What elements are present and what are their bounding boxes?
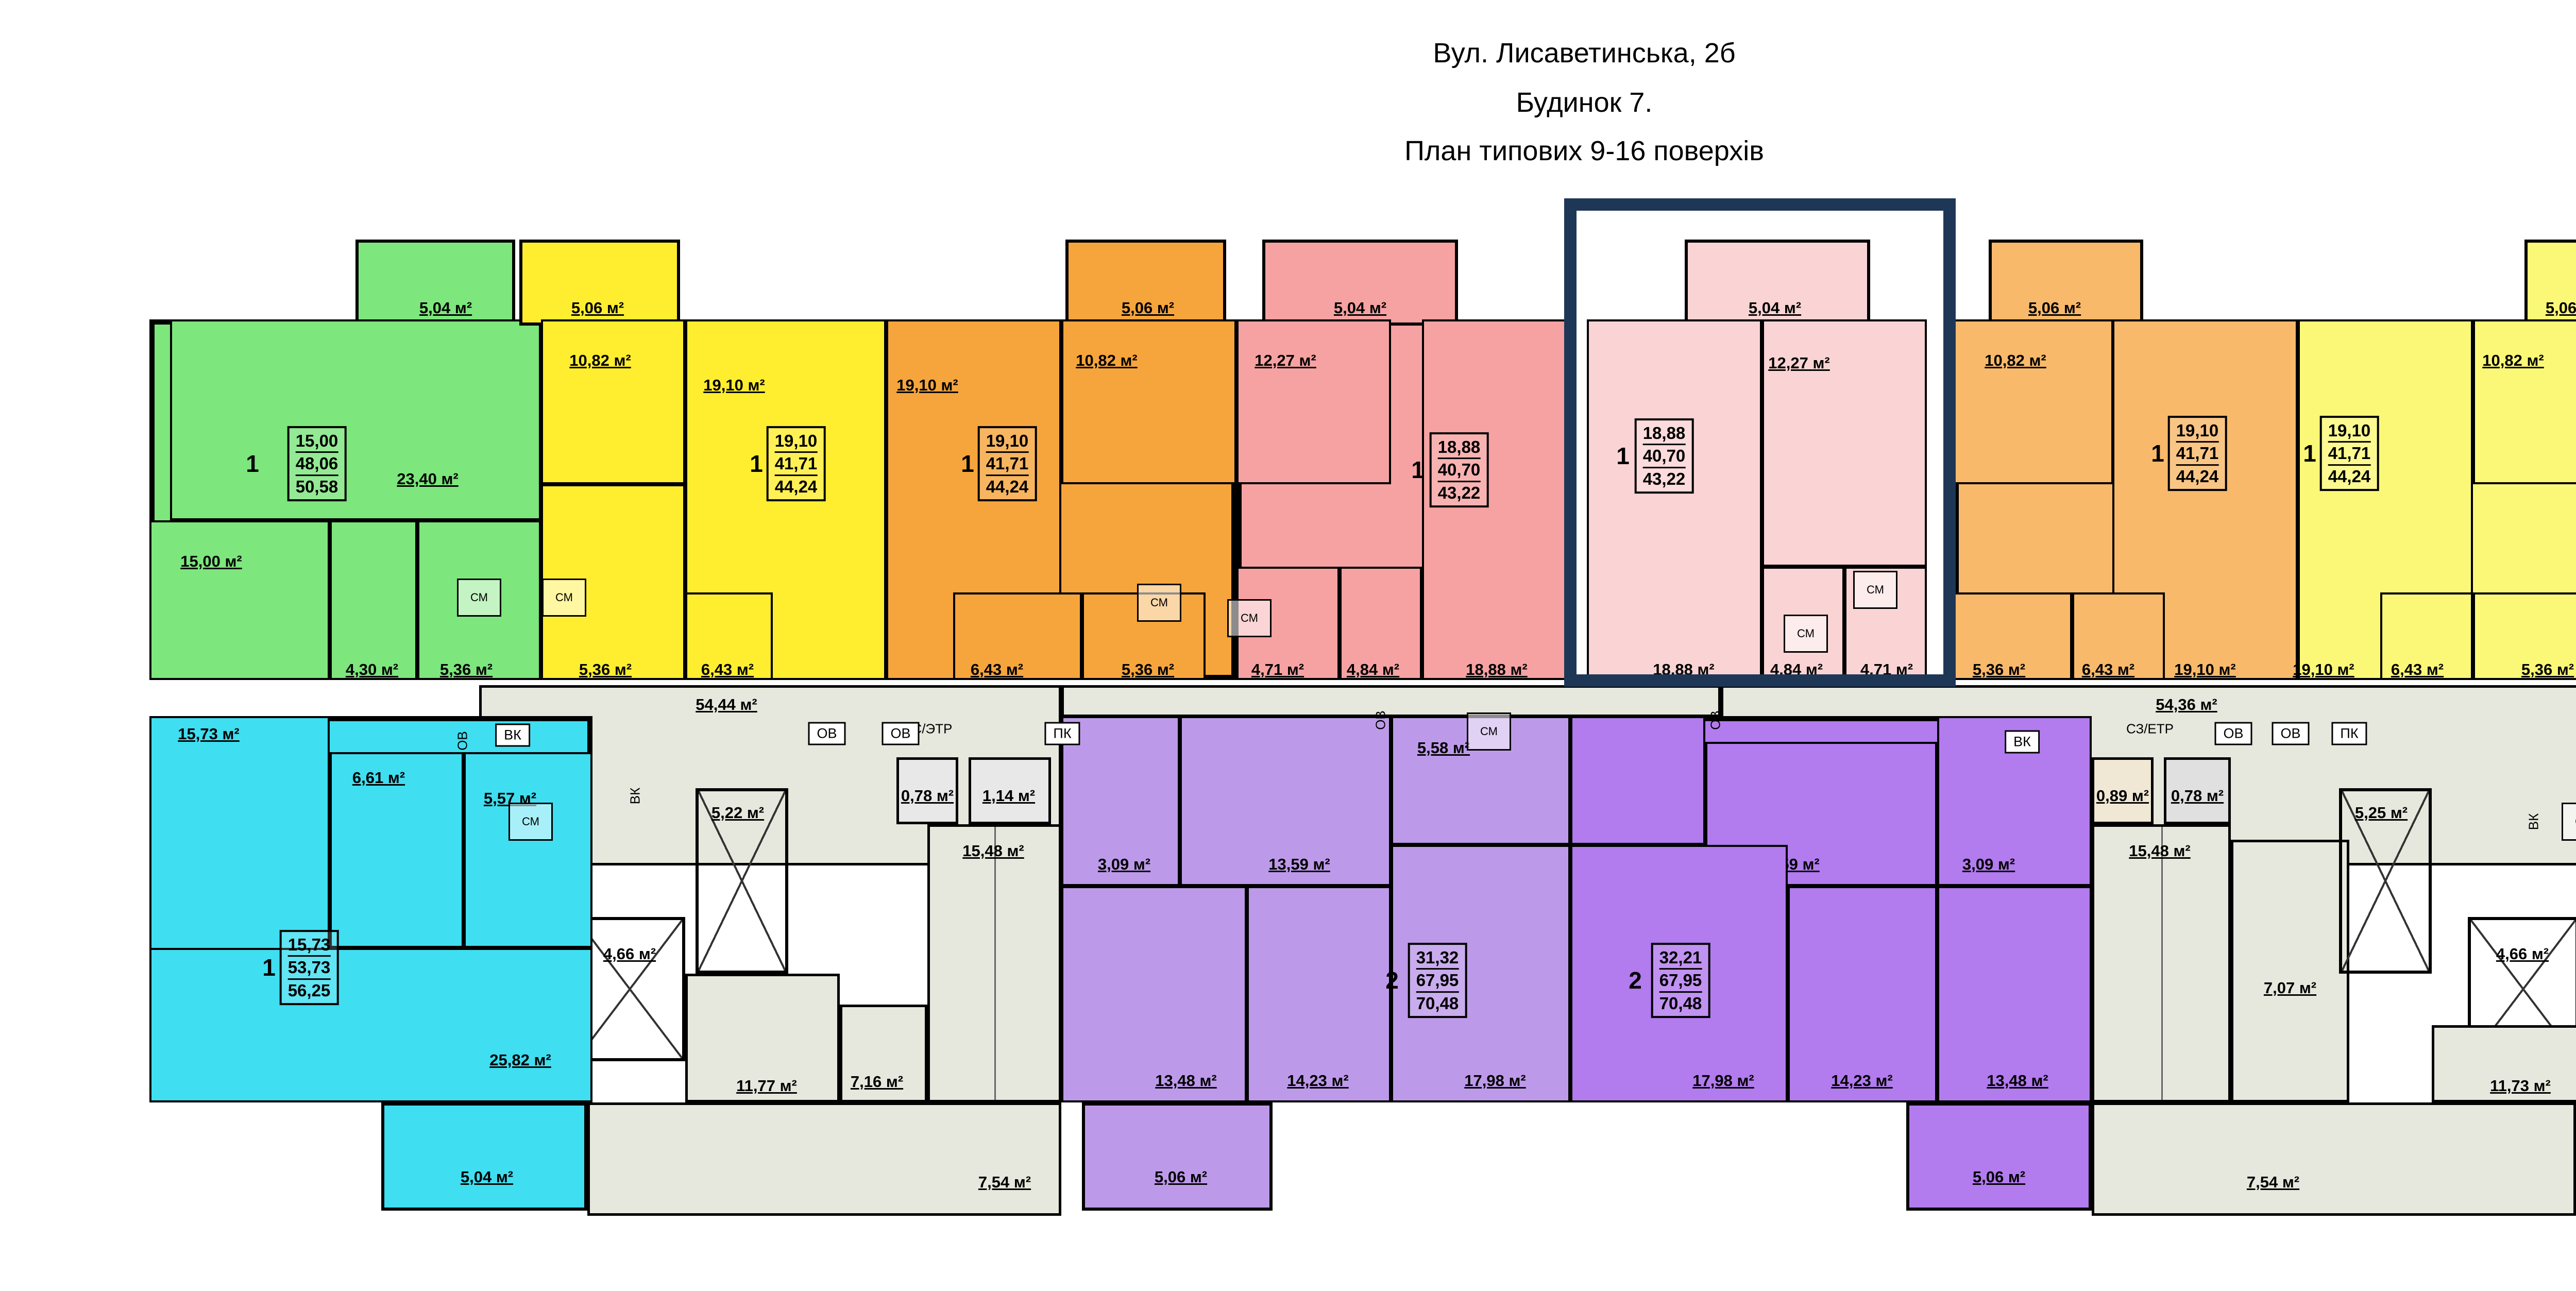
- room-area-label: 10,82 м²: [2482, 351, 2544, 370]
- corridor-area-label: 11,73 м²: [2490, 1077, 2551, 1095]
- elevator-area-label: 5,25 м²: [2355, 804, 2408, 822]
- room-area-label: 18,88 м²: [1466, 660, 1527, 679]
- corridor-area-label: 7,16 м²: [851, 1073, 903, 1091]
- corridor-area-label: 7,54 м²: [978, 1173, 1031, 1192]
- apt-purple-right-room: [1937, 886, 2092, 1102]
- stat-total-area: 44,24: [2176, 466, 2219, 487]
- apt-purple-left-room: [1247, 886, 1391, 1102]
- corridor: [2092, 1102, 2576, 1216]
- room-area-label: 5,58 м²: [1417, 739, 1470, 757]
- stat-living-area: 19,10: [986, 430, 1029, 453]
- room-area-label: 5,36 м²: [2521, 660, 2574, 679]
- room-area-label: 13,48 м²: [1155, 1072, 1216, 1090]
- room-area-label: 3,09 м²: [1962, 855, 2015, 874]
- stat-living-area: 19,10: [775, 430, 818, 453]
- corridor: [2231, 840, 2349, 1102]
- room-area-label: 14,23 м²: [1287, 1072, 1348, 1090]
- room-area-label: 5,36 м²: [579, 660, 632, 679]
- apt-purple-left-rooms-count: 2: [1385, 966, 1399, 994]
- balcony-area-label: 5,06 м²: [2546, 299, 2576, 317]
- title-building: Будинок 7.: [1262, 87, 1906, 118]
- shaft-label-ов: ОВ: [882, 722, 919, 745]
- stairwell: [2092, 824, 2231, 1102]
- shaft-area-label: 0,78 м²: [901, 787, 954, 805]
- stat-apartment-area: 48,06: [296, 453, 338, 475]
- apt-cyan-left-room: [464, 752, 592, 948]
- apt-green-left-room: [330, 520, 417, 680]
- apt-pink-left-stats-box: 18,8840,7043,22: [1430, 432, 1489, 507]
- room-area-label: 17,98 м²: [1464, 1072, 1526, 1090]
- shaft-area-label: 0,78 м²: [2171, 787, 2224, 805]
- shaft-label-вк: ВК: [2005, 731, 2040, 754]
- stat-total-area: 44,24: [2328, 466, 2371, 487]
- apt-green-left-room: [149, 520, 330, 680]
- shaft-area-label: 0,89 м²: [2096, 787, 2149, 805]
- corridor-area-label: 7,54 м²: [2247, 1173, 2299, 1192]
- shaft-label-ов: ОВ: [808, 722, 845, 745]
- stat-living-area: 15,73: [288, 934, 331, 957]
- title-plan-name: План типових 9-16 поверхів: [1262, 135, 1906, 167]
- shaft-label-ов: ОВ: [1708, 710, 1724, 730]
- corridor-area-label: 54,36 м²: [2156, 695, 2217, 714]
- room-area-label: 23,40 м²: [397, 470, 458, 488]
- room-area-label: 13,48 м²: [1987, 1072, 2048, 1090]
- room-area-label: 6,43 м²: [971, 660, 1023, 679]
- stairs-area-label: 15,48 м²: [2129, 842, 2190, 860]
- shaft-label-пк: ПК: [1044, 722, 1080, 745]
- stat-apartment-area: 53,73: [288, 957, 331, 979]
- corridor-area-label: 54,44 м²: [696, 695, 757, 714]
- room-area-label: 10,82 м²: [1985, 351, 2046, 370]
- shaft-label-ов: ОВ: [2214, 722, 2252, 745]
- room-area-label: 15,73 м²: [178, 725, 239, 743]
- room-area-label: 14,23 м²: [1831, 1072, 1892, 1090]
- shaft-label-вк: ВК: [628, 788, 643, 805]
- stairwell: [927, 824, 1061, 1102]
- room-area-label: 19,10 м²: [2293, 660, 2354, 679]
- balcony-area-label: 5,06 м²: [1155, 1168, 1207, 1186]
- shaft-label-ов: ОВ: [455, 731, 471, 751]
- corridor: [587, 1102, 1061, 1216]
- stat-living-area: 15,00: [296, 430, 338, 453]
- room-area-label: 6,43 м²: [2391, 660, 2444, 679]
- apt-purple-right-room: [1788, 886, 1937, 1102]
- room-area-label: 3,09 м²: [1098, 855, 1150, 874]
- apt-orange-left-room: [1061, 319, 1236, 484]
- elevator-area-label: 4,66 м²: [2496, 945, 2549, 963]
- corridor: [1061, 685, 1721, 717]
- apt-yellow-left-stats-box: 19,1041,7144,24: [767, 426, 826, 501]
- balcony-area-label: 5,06 м²: [1122, 299, 1174, 317]
- shaft-label-пк: ПК: [2331, 722, 2367, 745]
- apt-purple-right-balcony: [1906, 1102, 2092, 1211]
- washing-machine-box: СМ: [2562, 803, 2576, 841]
- title-address: Вул. Лисаветинська, 2б: [1262, 37, 1906, 69]
- room-area-label: 19,10 м²: [2174, 660, 2235, 679]
- elevator-area-label: 5,22 м²: [711, 804, 764, 822]
- apt-orange-right-rooms-count: 1: [2151, 439, 2164, 467]
- floor-plan-page: Вул. Лисаветинська, 2б Будинок 7. План т…: [0, 0, 2576, 1291]
- stat-living-area: 19,10: [2176, 420, 2219, 443]
- stat-total-area: 56,25: [288, 980, 331, 1001]
- shaft-label-вк: ВК: [2526, 813, 2542, 830]
- room-area-label: 6,43 м²: [2082, 660, 2134, 679]
- apt-orange-right-room: [1954, 319, 2113, 484]
- apt-pink-left-rooms-count: 1: [1411, 456, 1425, 484]
- stat-total-area: 43,22: [1438, 482, 1481, 503]
- room-area-label: 10,82 м²: [569, 351, 631, 370]
- apt-orange-left-stats-box: 19,1041,7144,24: [978, 426, 1037, 501]
- balcony-area-label: 5,04 м²: [419, 299, 472, 317]
- apt-purple-right-room: [1570, 716, 1705, 845]
- room-area-label: 12,27 м²: [1255, 351, 1316, 370]
- apt-purple-left-room: [1061, 886, 1247, 1102]
- room-area-label: 17,98 м²: [1692, 1072, 1754, 1090]
- room-area-label: 5,36 м²: [440, 660, 493, 679]
- room-area-label: 5,36 м²: [1122, 660, 1174, 679]
- apt-green-left-room: [170, 319, 541, 520]
- stat-living-area: 18,88: [1438, 436, 1481, 459]
- stat-apartment-area: 41,71: [2176, 443, 2219, 465]
- corridor-area-label: 7,07 м²: [2264, 979, 2316, 997]
- stat-apartment-area: 41,71: [2328, 443, 2371, 465]
- stat-apartment-area: 67,95: [1416, 970, 1459, 992]
- balcony-area-label: 5,04 м²: [1334, 299, 1386, 317]
- room-area-label: 19,10 м²: [896, 376, 958, 395]
- room-area-label: 4,30 м²: [346, 660, 398, 679]
- balcony-area-label: 5,06 м²: [571, 299, 624, 317]
- room-area-label: 13,59 м²: [1268, 855, 1330, 874]
- apt-cyan-left-rooms-count: 1: [262, 954, 276, 981]
- apt-yellow-right-stats-box: 19,1041,7144,24: [2320, 416, 2379, 491]
- shaft-label-ов: ОВ: [1373, 710, 1389, 730]
- elevator-area-label: 4,66 м²: [603, 945, 656, 963]
- shaft-label-вк: ВК: [495, 724, 530, 747]
- washing-machine-box: СМ: [542, 579, 586, 617]
- stat-apartment-area: 41,71: [986, 453, 1029, 475]
- stat-apartment-area: 41,71: [775, 453, 818, 475]
- apt-cyan-left-stats-box: 15,7353,7356,25: [280, 930, 339, 1005]
- room-area-label: 15,00 м²: [180, 552, 242, 571]
- room-area-label: 10,82 м²: [1076, 351, 1137, 370]
- stat-apartment-area: 40,70: [1438, 459, 1481, 482]
- shaft-area-label: 1,14 м²: [982, 787, 1035, 805]
- apt-yellow-right-room: [2473, 319, 2576, 484]
- stat-total-area: 50,58: [296, 476, 338, 497]
- shaft-label-сз/етр: СЗ/ЕТР: [2126, 721, 2174, 737]
- room-area-label: 4,84 м²: [1347, 660, 1399, 679]
- apt-yellow-left-rooms-count: 1: [750, 450, 763, 478]
- stairs-area-label: 15,48 м²: [962, 842, 1024, 860]
- room-area-label: 19,10 м²: [703, 376, 765, 395]
- stat-apartment-area: 67,95: [1659, 970, 1702, 992]
- stat-living-area: 19,10: [2328, 420, 2371, 443]
- washing-machine-box: СМ: [1467, 712, 1511, 751]
- apt-orange-right-stats-box: 19,1041,7144,24: [2168, 416, 2227, 491]
- apt-cyan-left-room: [149, 948, 592, 1102]
- washing-machine-box: СМ: [509, 803, 553, 841]
- room-area-label: 6,43 м²: [701, 660, 754, 679]
- washing-machine-box: СМ: [457, 579, 501, 617]
- apt-purple-left-stats-box: 31,3267,9570,48: [1408, 943, 1467, 1018]
- corridor-area-label: 11,77 м²: [736, 1077, 797, 1095]
- apt-cyan-left-balcony: [381, 1102, 587, 1211]
- stat-living-area: 31,32: [1416, 947, 1459, 970]
- stat-total-area: 70,48: [1659, 993, 1702, 1014]
- stat-total-area: 44,24: [775, 476, 818, 497]
- room-area-label: 5,36 м²: [1973, 660, 2025, 679]
- selected-apartment-highlight: [1564, 198, 1956, 687]
- balcony-area-label: 5,06 м²: [2028, 299, 2081, 317]
- washing-machine-box: СМ: [1137, 584, 1181, 622]
- stat-living-area: 32,21: [1659, 947, 1702, 970]
- balcony-area-label: 5,06 м²: [1973, 1168, 2025, 1186]
- stat-total-area: 44,24: [986, 476, 1029, 497]
- apt-orange-left-rooms-count: 1: [961, 450, 974, 478]
- room-area-label: 6,61 м²: [352, 769, 405, 787]
- apt-yellow-right-rooms-count: 1: [2303, 439, 2316, 467]
- apt-green-left-rooms-count: 1: [246, 450, 259, 478]
- room-area-label: 25,82 м²: [489, 1051, 551, 1069]
- room-area-label: 4,71 м²: [1251, 660, 1304, 679]
- apt-purple-left-balcony: [1082, 1102, 1273, 1211]
- apt-pink-left-room: [1236, 319, 1391, 484]
- balcony-area-label: 5,04 м²: [461, 1168, 513, 1186]
- stat-total-area: 70,48: [1416, 993, 1459, 1014]
- shaft-label-ов: ОВ: [2272, 722, 2309, 745]
- washing-machine-box: СМ: [1227, 599, 1272, 637]
- apt-purple-right-stats-box: 32,2167,9570,48: [1651, 943, 1710, 1018]
- apt-yellow-left-room: [541, 319, 685, 484]
- apt-green-left-stats-box: 15,0048,0650,58: [287, 426, 347, 501]
- apt-purple-right-rooms-count: 2: [1629, 966, 1642, 994]
